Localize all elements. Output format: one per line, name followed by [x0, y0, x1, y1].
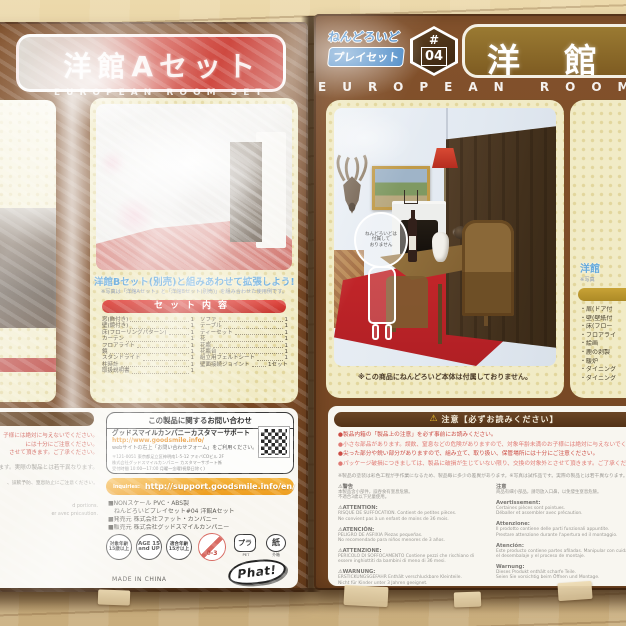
leader-dots: [257, 360, 282, 361]
en-support-banner: Inquiries: http://support.goodsmile.info…: [106, 478, 294, 495]
floor-shadow: [0, 588, 626, 614]
warning-header-bar: ⚠ 注意【必ずお読みください】: [334, 412, 626, 427]
warning-entry: 注意商品有細小部品，請勿放入口鼻，以免發生窒息危險。: [496, 484, 626, 495]
warning-entry: ⚠ATENCIÓN:PELIGRO DE ASFIXIA Piezas pequ…: [338, 527, 488, 544]
warning-fragment: させて頂きます。ご了承ください。: [0, 449, 98, 458]
contact-box: この製品に関するお問い合わせ グッドスマイルカンパニーカスタマーサポート htt…: [106, 412, 294, 474]
side-item: ・壁(壁紙付: [580, 315, 626, 324]
table-leg: [438, 284, 442, 344]
contact-address3: 受付時間 10:00〜17:00 月曜〜金曜(祝祭日除く): [112, 466, 258, 472]
contact-url: http://www.goodsmile.info/: [112, 437, 258, 444]
warning-bullet: ●パッケージ破損につきましては、製品に破損が生じていない限り、交換の対象外とさせ…: [338, 460, 626, 470]
side-item: ・ダイニング: [580, 366, 626, 375]
warning-fragment: には十分にご注意ください。: [0, 441, 98, 450]
left-box-fold-glare: [54, 92, 90, 412]
photo-scene: 洋館Aセット EUROPEAN ROOM SET 洋館Bセット(別売)と組みあわ…: [0, 0, 626, 626]
badge-hash: #: [410, 33, 458, 47]
age-badge-jp: 対象年齢 15歳以上: [106, 534, 132, 560]
left-bottom-panel: 子様には絶対に与えないでください。 には十分にご注意ください。 させて頂きます。…: [0, 408, 298, 588]
warning-triangle-icon: ⚠: [429, 415, 437, 424]
right-title-banner: 洋館: [462, 24, 626, 78]
side-note-fragment: ※写真: [580, 276, 595, 283]
left-title-text: 洋館Aセット: [63, 45, 261, 85]
right-box: ねんどろいど プレイセット # 04 洋館 EUROPEAN ROOM: [314, 14, 626, 590]
deer-trophy-icon: [334, 152, 374, 218]
spec-line: ■NONスケール PVC・ABS製: [108, 500, 294, 508]
made-in-label: MADE IN CHINA: [112, 576, 212, 583]
warning-bullets: ●製品内箱の「製品上の注意」を必ず事前にお読みください。 ●小さな部品があります…: [338, 431, 626, 469]
item-label: 取扱説明書: [102, 368, 130, 374]
phat-logo-text: Phat!: [237, 563, 278, 582]
spec-line: ■発売元 株式会社ファット・カンパニー: [108, 516, 294, 524]
leader-dots: [143, 360, 189, 361]
chair-graphic: [462, 220, 514, 316]
item-qty: 1セット: [268, 362, 288, 368]
right-main-panel: ねんどろいどは 付属して おりません ※この商品にねんどろいど本体は付属しており…: [326, 100, 564, 398]
age-badge-fit: 適合年齢 15才以上: [166, 534, 192, 560]
figure-placeholder-body: [368, 266, 396, 324]
leader-dots: [130, 328, 188, 329]
edge-panel-photo: [0, 208, 56, 328]
set-contents-col1: 窓(飾付き)1 壁(鏡付き)1 床(フローリングパターン)1 カーテン1 フロア…: [102, 317, 194, 375]
right-title-text: 洋館: [487, 34, 626, 78]
item-qty: 1: [191, 368, 195, 374]
warning-fragment: ます。実際の製品とは若干異なります。: [0, 464, 98, 473]
logo-line2: プレイセット: [327, 47, 405, 67]
warning-bullet: ●製品内箱の「製品上の注意」を必ず事前にお読みください。: [338, 431, 626, 441]
contact-web-note: webサイトの右上「お問い合わせフォーム」をご利用ください。: [112, 444, 258, 451]
warning-entry: ⚠WARNUNG:ERSTICKUNGSGEFAHR Enthält versc…: [338, 569, 488, 586]
warning-entry: Attenzione:Il prodotto contiene delle pa…: [496, 521, 626, 538]
photo-caption: ※この商品にねんどろいど本体は付属しておりません。: [332, 372, 558, 382]
left-headline-note: ※写真は「洋館Aセット」と「洋館Bセット(別売)」を組み合わせた使用例です。: [94, 288, 294, 295]
left-warning-fragments: 子様には絶対に与えないでください。 には十分にご注意ください。 させて頂きます。…: [0, 432, 98, 520]
left-main-panel: 洋館Bセット(別売)と組みあわせて拡張しよう!! ※写真は「洋館Aセット」と「洋…: [90, 98, 298, 403]
right-subtitle: EUROPEAN ROOM: [318, 80, 626, 94]
room-photo: ねんどろいどは 付属して おりません: [334, 108, 556, 366]
tape-piece: [344, 585, 389, 607]
leader-dots: [219, 321, 283, 322]
leader-dots: [130, 321, 188, 322]
warning-fragment: 、誤飲予防、窒息防止にご注意ください。: [0, 480, 98, 489]
side-item: ・暖炉: [580, 358, 626, 367]
figure-placeholder-head: ねんどろいどは 付属して おりません: [354, 212, 408, 268]
right-bottom-panel: ⚠ 注意【必ずお読みください】 ●製品内箱の「製品上の注意」を必ず事前にお読みく…: [328, 406, 626, 586]
photo-door: [230, 142, 262, 242]
side-contents-header: [578, 288, 626, 301]
warning-header-text: 注意【必ずお読みください】: [442, 414, 559, 425]
left-headline: 洋館Bセット(別売)と組みあわせて拡張しよう!!: [94, 274, 294, 288]
left-edge-panel: [0, 100, 56, 402]
spec-line: ■販売元 株式会社グッドスマイルカンパニー: [108, 524, 294, 532]
white-jug-graphic: [432, 232, 449, 262]
contents-item: 壁面接続ジョイント1セット: [200, 362, 288, 368]
figure-placeholder-leg: [372, 324, 379, 340]
nendoroid-playset-logo: ねんどろいど プレイセット: [328, 28, 420, 74]
contact-support: グッドスマイルカンパニーカスタマーサポート: [112, 427, 258, 437]
leader-dots: [126, 341, 188, 342]
qr-code: [259, 427, 289, 457]
side-item: ・フロアライ: [580, 332, 626, 341]
leader-dots: [137, 347, 188, 348]
warning-bullet: ●小さな部品があります。誤飲、窒息などの危険がありますので、対象年齢未満のお子様…: [338, 441, 626, 451]
leader-dots: [208, 341, 283, 342]
leader-dots: [252, 366, 266, 367]
tape-piece: [98, 589, 131, 605]
warning-fragment: 子様には絶対に与えないでください。: [0, 432, 98, 441]
set-contents-col2: ソファ1 テーブル1 ティーセット1 花1 花瓶1 花瓶台1 組立用フェルトシー…: [200, 317, 288, 368]
warning-entry: Warnung:Dieses Produkt enthält scharfe T…: [496, 564, 626, 581]
en-support-label: Inquiries:: [113, 484, 140, 490]
spec-lines: ■NONスケール PVC・ABS製 ねんどろいどプレイセット#04 洋館Aセット…: [108, 500, 294, 532]
spec-line: ねんどろいどプレイセット#04 洋館Aセット: [108, 508, 294, 516]
leader-dots: [213, 347, 282, 348]
leader-dots: [121, 366, 189, 367]
side-headline-fragment: 洋館: [580, 260, 600, 275]
side-item: ・床(フロー: [580, 323, 626, 332]
photo-flowers-2: [100, 150, 126, 176]
left-warning-bar-fragment: [0, 412, 94, 426]
badge-number: 04: [421, 47, 447, 66]
age-badge-en: AGE 15 and UP: [136, 534, 162, 560]
leader-dots: [132, 373, 189, 374]
leader-dots: [235, 334, 283, 335]
multilang-col-right: 注意商品有細小部品，請勿放入口鼻，以免發生窒息危險。 Avertissement…: [496, 484, 626, 585]
set-contents-header: セット内容: [102, 300, 286, 313]
candelabra-icon: [404, 190, 418, 204]
right-side-panel: 洋館 ※写真 ・扉(ドア付 ・壁(壁紙付 ・床(フロー ・フロアライ ・絵画 ・…: [570, 100, 626, 398]
warning-entry: ⚠警告本製品含小部件，誤吞食有窒息危險。 不適合3歲以下兒童使用。: [338, 484, 488, 501]
tape-piece: [454, 592, 482, 608]
leader-dots: [224, 328, 283, 329]
warning-fragment: d portions.: [0, 503, 98, 512]
warning-fragment: er avec précaution.: [0, 511, 98, 520]
side-item: ・鹿の剥製: [580, 349, 626, 358]
warning-entry: Atención:Este producto contiene partes a…: [496, 543, 626, 560]
side-contents-list: ・扉(ドア付 ・壁(壁紙付 ・床(フロー ・フロアライ ・絵画 ・鹿の剥製 ・暖…: [580, 306, 626, 383]
figure-note-text: ねんどろいどは 付属して おりません: [365, 232, 397, 249]
left-title-banner: 洋館Aセット: [16, 34, 286, 92]
tape-piece: [557, 581, 592, 601]
figure-placeholder-leg: [385, 324, 392, 340]
choke-hazard-badge: 0-3: [198, 533, 226, 561]
contents-item: 取扱説明書1: [102, 368, 194, 374]
warning-note: ※製品の塗装は彩色工程が手作業になるため、製品毎に多少の差異があります。※写真は…: [338, 472, 626, 479]
leader-dots: [169, 334, 189, 335]
wine-bottle-graphic: [408, 218, 417, 262]
plastic-recycle-mark: プラ PET: [234, 534, 258, 562]
warning-entry: ⚠ATTENTION:RISQUE DE SUFFOCATION. Contie…: [338, 505, 488, 522]
item-label: 壁面接続ジョイント: [200, 362, 250, 368]
left-product-photo: [96, 104, 292, 270]
en-support-url: http://support.goodsmile.info/en/: [145, 482, 295, 491]
side-item: ・ダイニング: [580, 375, 626, 384]
multilang-col-left: ⚠警告本製品含小部件，誤吞食有窒息危險。 不適合3歲以下兒童使用。 ⚠ATTEN…: [338, 484, 488, 586]
left-box: 洋館Aセット EUROPEAN ROOM SET 洋館Bセット(別売)と組みあわ…: [0, 22, 308, 592]
warning-bullet: ●尖った部分や鋭い部分がありますので、組み立て、取り扱い、保管場所には十分にご注…: [338, 450, 626, 460]
warning-entry: Avertissement:Certaines pièces sont poin…: [496, 500, 626, 517]
side-item: ・扉(ドア付: [580, 306, 626, 315]
side-item: ・絵画: [580, 340, 626, 349]
edge-panel-carpet: [0, 358, 56, 372]
warning-entry: ⚠ATTENZIONE:PERICOLO DI SOFFOCAMENTO Con…: [338, 548, 488, 565]
logo-line1: ねんどろいど: [327, 28, 421, 45]
paper-recycle-mark: 紙 外箱: [264, 534, 288, 562]
